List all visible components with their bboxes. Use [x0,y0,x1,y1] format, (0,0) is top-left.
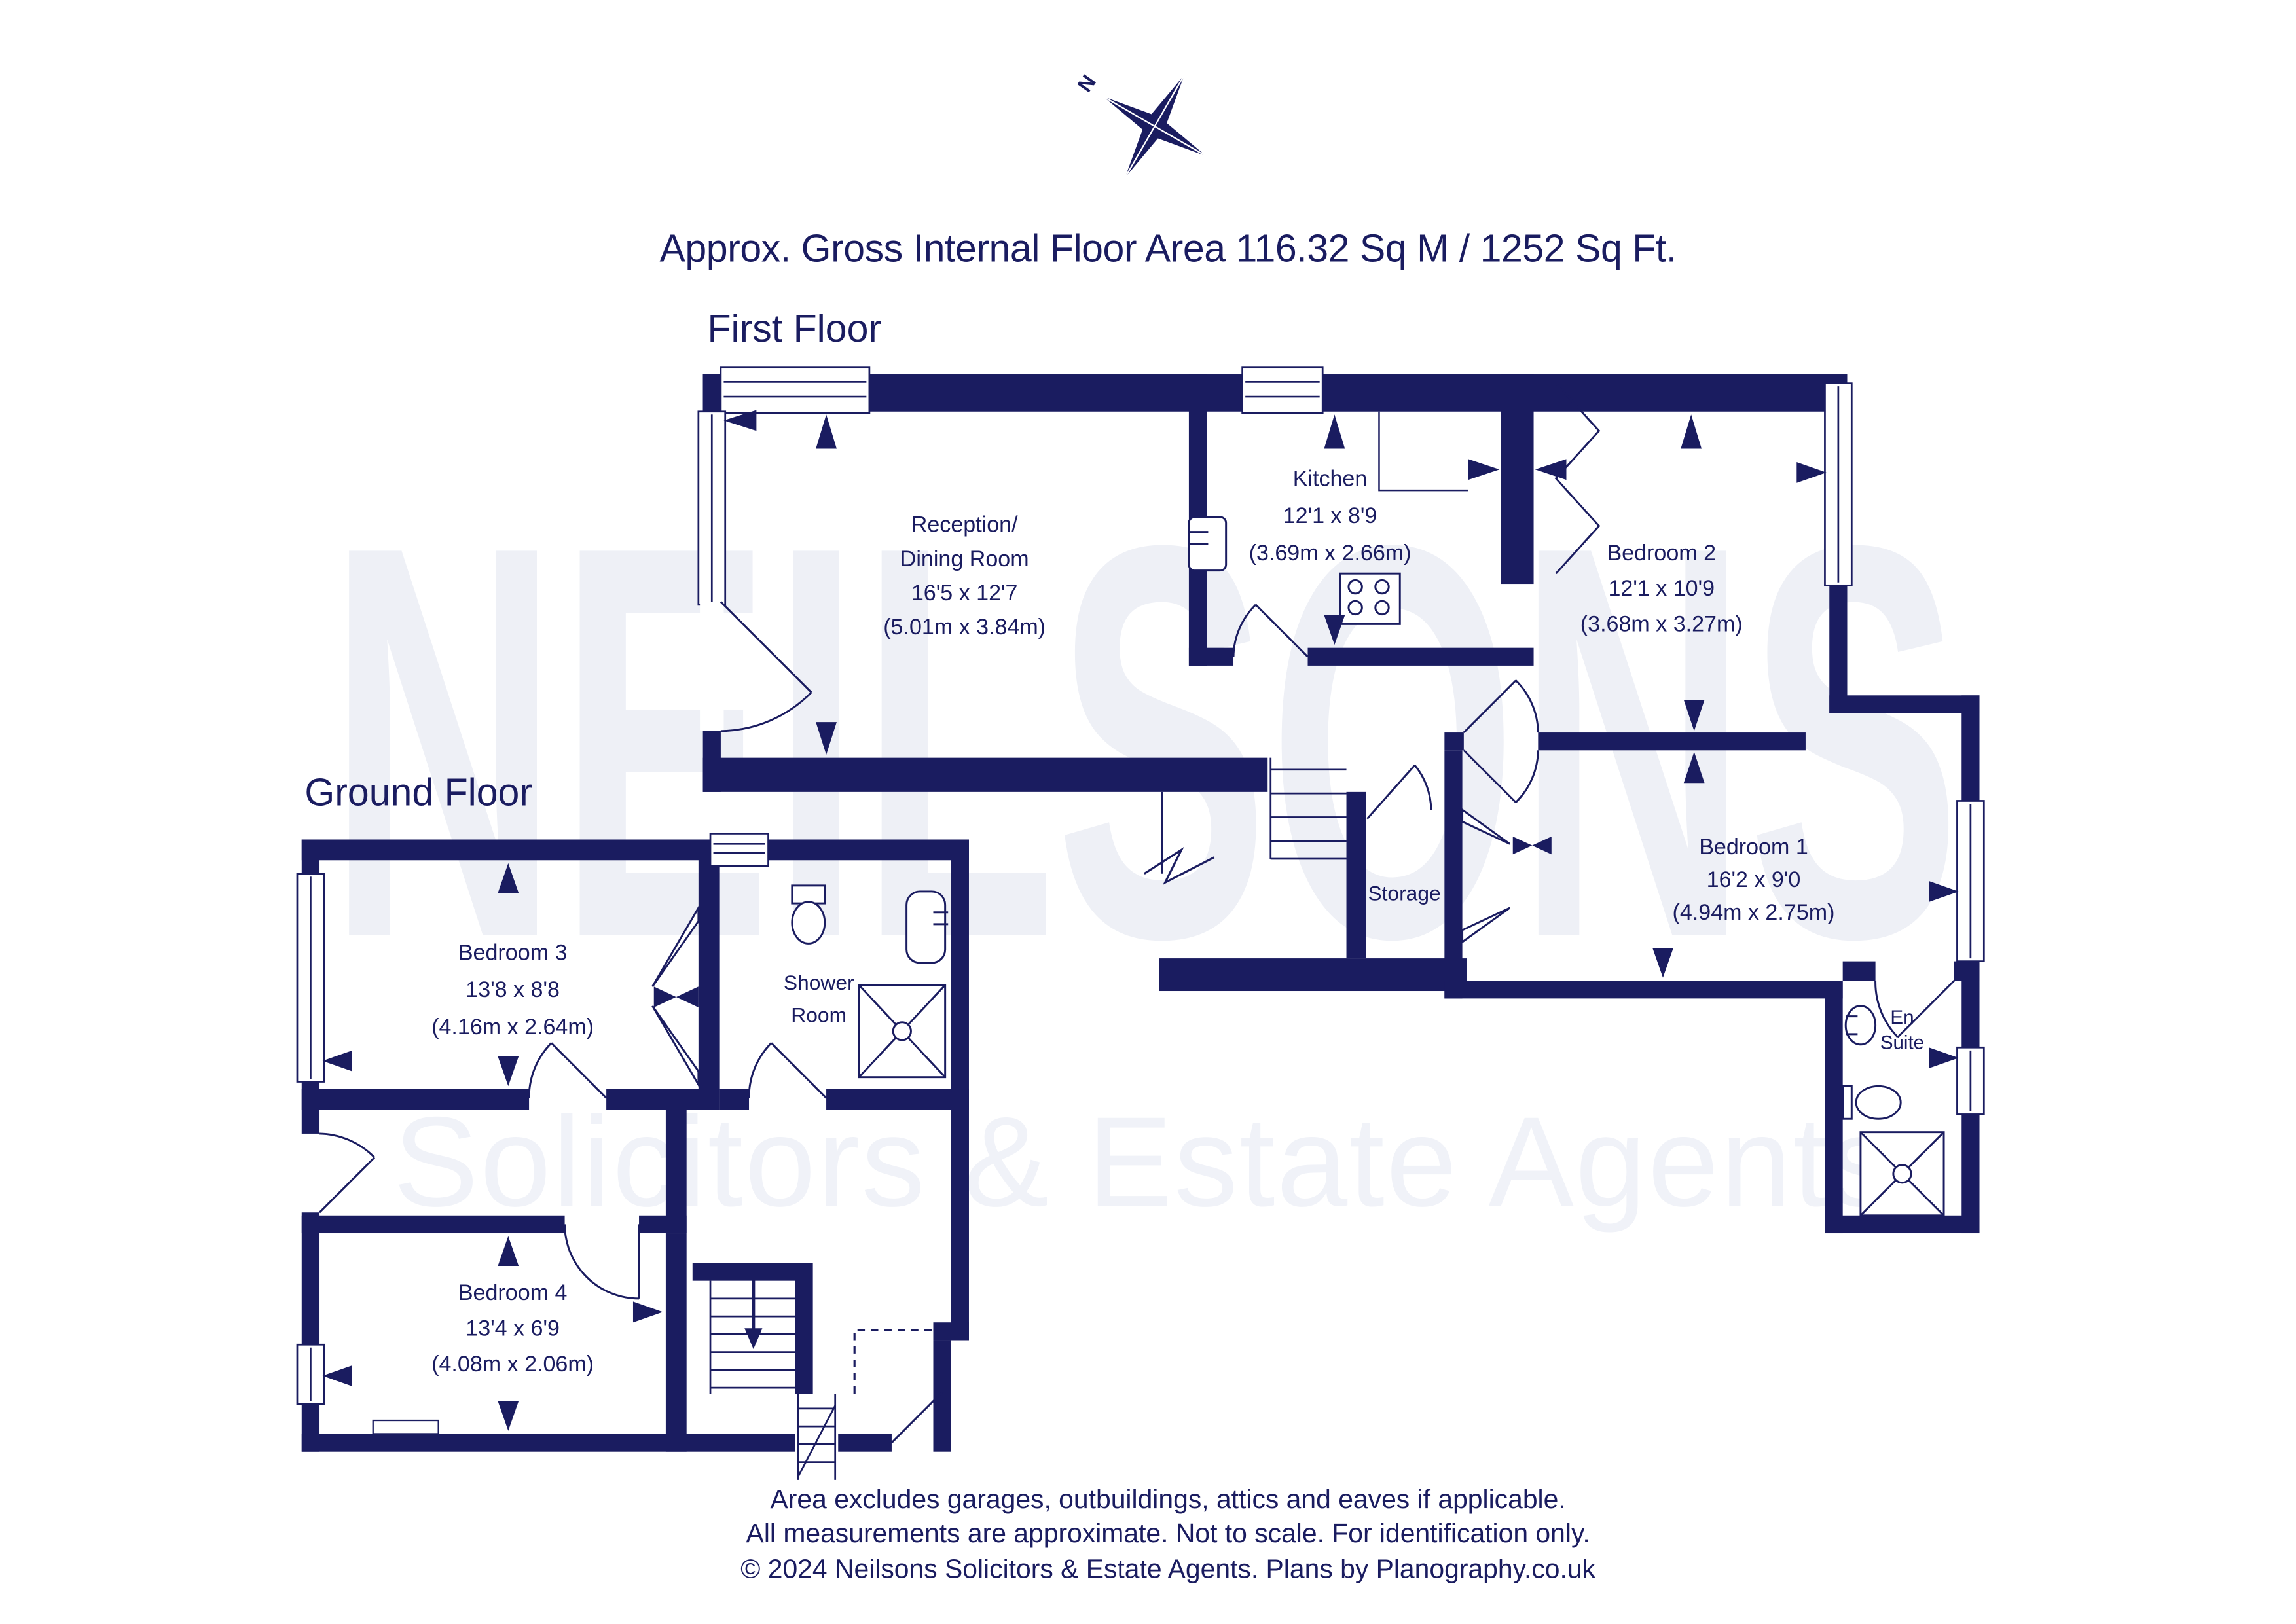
room-label-bedroom2: Bedroom 2 12'1 x 10'9 (3.68m x 3.27m) [1580,536,1743,643]
room-size-metric: (5.01m x 3.84m) [883,611,1046,645]
ensuite-sink-icon [1846,1006,1875,1045]
room-name: Suite [1880,1030,1924,1055]
footer-line: Area excludes garages, outbuildings, att… [740,1483,1595,1517]
room-label-ensuite: En Suite [1880,1004,1924,1055]
room-size-metric: (4.08m x 2.06m) [431,1348,594,1383]
footer-line: All measurements are approximate. Not to… [740,1517,1595,1552]
room-size-imperial: 13'4 x 6'9 [431,1312,594,1347]
room-name: Storage [1368,881,1440,905]
footer-line: © 2024 Neilsons Solicitors & Estate Agen… [740,1552,1595,1587]
floorplan-page: NEILSONS Solicitors & Estate Agents [0,0,2296,1624]
room-name: En [1880,1004,1924,1030]
sink-icon [907,892,945,963]
room-name: Kitchen [1249,461,1412,498]
room-name: Shower [784,965,854,998]
footer-disclaimer: Area excludes garages, outbuildings, att… [740,1483,1595,1587]
room-size-imperial: 12'1 x 8'9 [1249,497,1412,535]
toilet-tank [792,886,825,903]
room-name: Room [784,998,854,1031]
room-label-shower-room: Shower Room [784,965,854,1031]
hob-icon [1340,573,1400,624]
room-size-imperial: 13'8 x 8'8 [431,972,594,1009]
room-size-imperial: 12'1 x 10'9 [1580,572,1743,607]
room-size-imperial: 16'5 x 12'7 [883,577,1046,611]
room-size-metric: (3.69m x 2.66m) [1249,535,1412,572]
room-size-imperial: 16'2 x 9'0 [1673,865,1835,897]
first-floor-label: First Floor [707,306,881,352]
room-label-bedroom3: Bedroom 3 13'8 x 8'8 (4.16m x 2.64m) [431,935,594,1046]
room-name: Reception/ [883,508,1046,542]
room-name: Dining Room [883,543,1046,577]
room-name: Bedroom 3 [431,935,594,972]
ensuite-toilet-tank [1843,1086,1852,1119]
room-label-bedroom1: Bedroom 1 16'2 x 9'0 (4.94m x 2.75m) [1673,832,1835,930]
ensuite-toilet-icon [1856,1086,1901,1119]
room-size-metric: (3.68m x 3.27m) [1580,607,1743,643]
page-title: Approx. Gross Internal Floor Area 116.32… [659,226,1676,272]
room-label-kitchen: Kitchen 12'1 x 8'9 (3.69m x 2.66m) [1249,461,1412,572]
room-name: Bedroom 2 [1580,536,1743,571]
room-size-metric: (4.16m x 2.64m) [431,1009,594,1046]
room-size-metric: (4.94m x 2.75m) [1673,897,1835,930]
ground-floor-walls [302,839,969,1451]
ground-floor-label: Ground Floor [304,770,532,816]
room-label-reception: Reception/ Dining Room 16'5 x 12'7 (5.01… [883,508,1046,645]
room-name: Bedroom 1 [1673,832,1835,865]
scaler: NEILSONS Solicitors & Estate Agents [0,0,2296,1624]
compass-star-icon [1074,45,1236,208]
room-label-bedroom4: Bedroom 4 13'4 x 6'9 (4.08m x 2.06m) [431,1276,594,1383]
room-label-storage: Storage [1368,881,1440,905]
room-name: Bedroom 4 [431,1276,594,1312]
toilet-icon [792,902,825,944]
